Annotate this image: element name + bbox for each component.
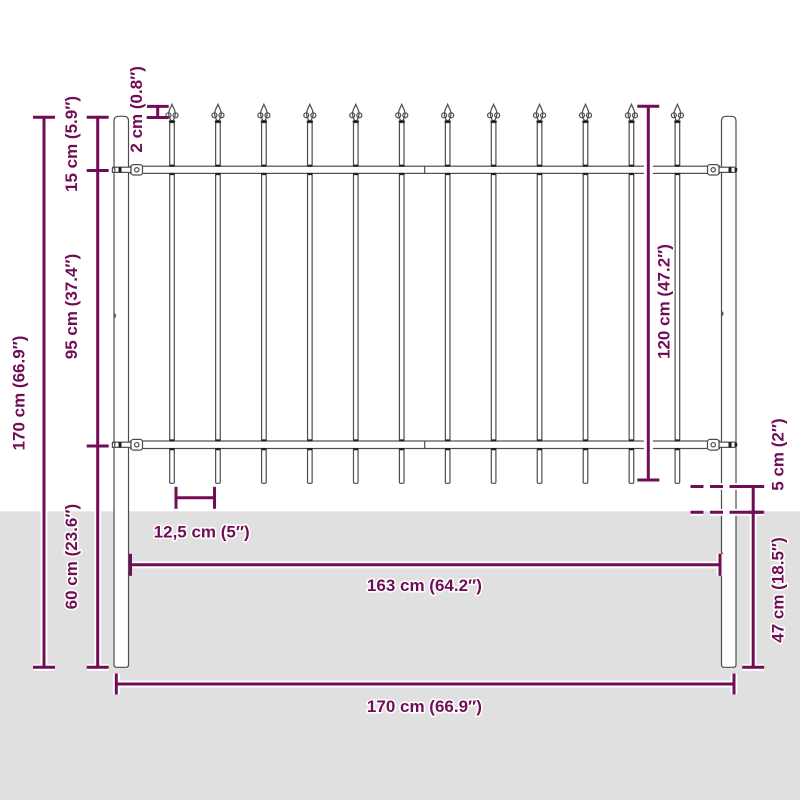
svg-text:95 cm (37.4″): 95 cm (37.4″) [62,254,81,359]
svg-text:15 cm (5.9″): 15 cm (5.9″) [62,96,81,192]
svg-text:170 cm (66.9″): 170 cm (66.9″) [10,336,29,451]
svg-text:2 cm (0.8″): 2 cm (0.8″) [127,66,146,153]
svg-text:170 cm (66.9″): 170 cm (66.9″) [367,697,482,716]
svg-text:163 cm (64.2″): 163 cm (64.2″) [367,576,482,595]
svg-text:47 cm (18.5″): 47 cm (18.5″) [768,537,787,642]
svg-text:5 cm (2″): 5 cm (2″) [768,418,787,490]
svg-text:12,5 cm (5″): 12,5 cm (5″) [154,522,250,541]
svg-text:60 cm (23.6″): 60 cm (23.6″) [62,504,81,609]
svg-text:120 cm (47.2″): 120 cm (47.2″) [654,244,673,359]
